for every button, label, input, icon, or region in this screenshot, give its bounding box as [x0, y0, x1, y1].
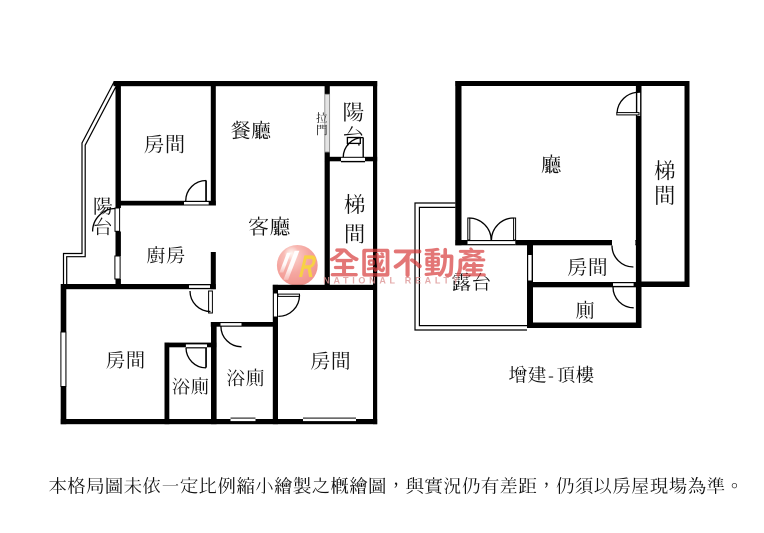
- svg-text:NATIONAL REALTY: NATIONAL REALTY: [323, 275, 462, 285]
